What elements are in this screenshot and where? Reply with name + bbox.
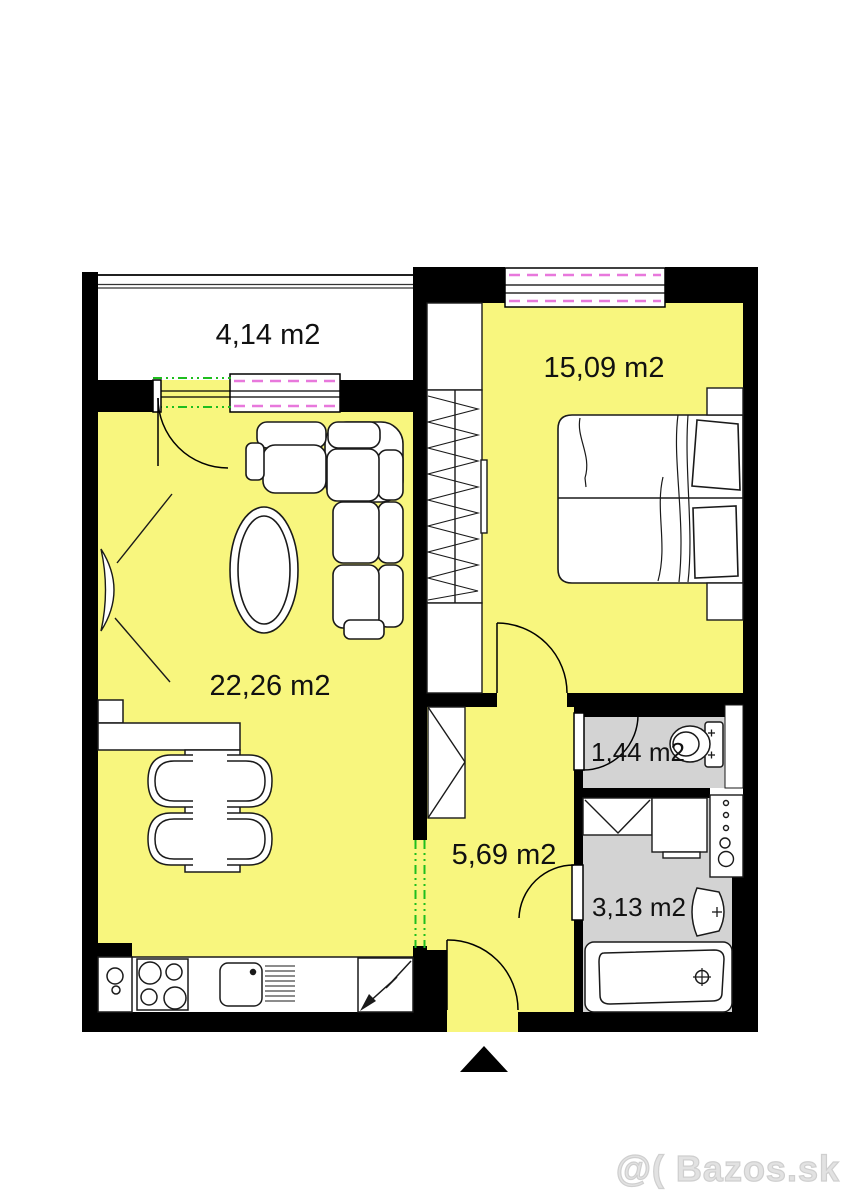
nightstand-bottom [707, 583, 743, 620]
pillow-top [692, 420, 740, 490]
wall-balcony-right [340, 380, 413, 412]
floor-plan-canvas: 4,14 m2 22,26 m2 15,09 m2 5,69 m2 1,44 m… [0, 0, 848, 1200]
chair-bottom-left [148, 813, 193, 865]
washing-machine [583, 798, 652, 835]
wall-entry-stub [413, 950, 447, 1012]
wall-kitchen-stub [98, 943, 132, 957]
bath-cabinet [652, 798, 707, 858]
wall-bedroom-bottom-left [413, 693, 497, 707]
hallway-closet [428, 707, 465, 818]
kitchen [98, 957, 413, 1012]
coffee-table [230, 507, 298, 633]
watermark-bazos: @( Bazos.sk [616, 1148, 840, 1190]
wall-bottom-right [518, 1012, 758, 1032]
sideboard [98, 723, 240, 750]
fridge-break-symbol [358, 958, 413, 1012]
pillow-bottom [693, 506, 738, 578]
wall-left [82, 272, 98, 1032]
room-label-living: 22,26 m2 [210, 670, 331, 702]
chair-top-left [148, 755, 193, 807]
room-label-wc: 1,44 m2 [591, 737, 685, 767]
bed [558, 415, 743, 583]
bathroom-sink [692, 888, 724, 936]
stove [137, 959, 188, 1010]
entrance-arrow [460, 1046, 508, 1072]
living-room-window [230, 374, 340, 412]
balcony-railing [98, 275, 413, 288]
wall-bottom-left [82, 1012, 447, 1032]
bedroom-window [505, 268, 665, 307]
wall-divider-upper [413, 271, 427, 840]
wall-wc-bath-divider [583, 788, 710, 798]
bathtub [585, 942, 732, 1012]
room-label-balcony: 4,14 m2 [216, 319, 321, 351]
wall-balcony-left [98, 380, 153, 412]
bedroom-door-gap [497, 693, 567, 707]
chair-bottom-right [227, 813, 272, 865]
nightstand-top [707, 388, 743, 415]
wall-wc-top [574, 705, 725, 717]
wc-shaft [725, 705, 743, 788]
room-label-bathroom: 3,13 m2 [592, 892, 686, 922]
kitchen-sink [220, 963, 295, 1006]
room-label-bedroom: 15,09 m2 [544, 352, 665, 384]
heating-shaft [710, 795, 743, 877]
room-label-hallway: 5,69 m2 [452, 839, 557, 871]
wall-bath-right [732, 877, 758, 1012]
chair-top-right [227, 755, 272, 807]
wall-hall-wet-lower [574, 920, 583, 1012]
wardrobe [427, 303, 487, 693]
entrance-threshold [447, 1012, 518, 1032]
floor-plan-drawing: 4,14 m2 22,26 m2 15,09 m2 5,69 m2 1,44 m… [0, 0, 848, 1200]
dining-niche [98, 700, 123, 723]
kitchen-cabinet [98, 957, 132, 1012]
